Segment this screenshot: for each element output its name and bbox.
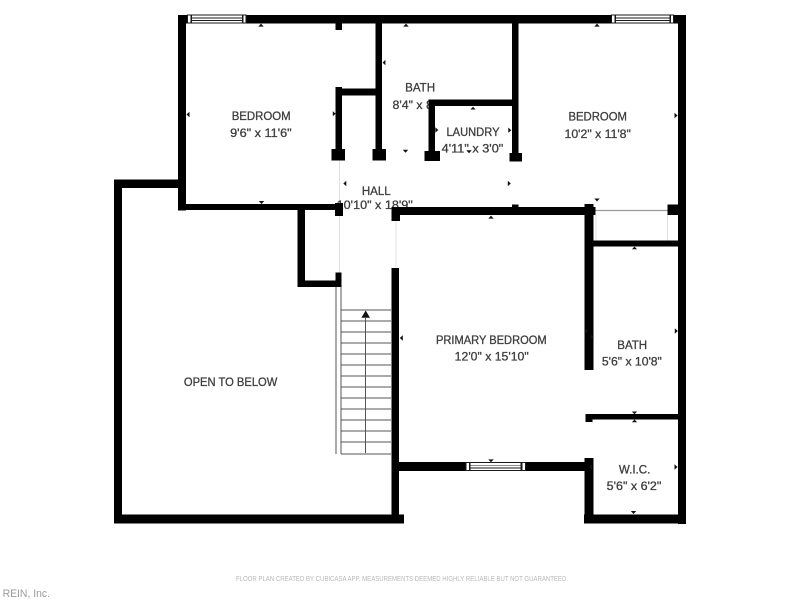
- svg-text:W.I.C.: W.I.C.: [619, 463, 650, 477]
- svg-text:10'2" x 11'8": 10'2" x 11'8": [565, 127, 631, 141]
- svg-text:REIN, Inc.: REIN, Inc.: [3, 588, 50, 600]
- svg-text:FLOOR PLAN CREATED BY CUBICASA: FLOOR PLAN CREATED BY CUBICASA APP. MEAS…: [236, 576, 568, 583]
- svg-text:LAUNDRY: LAUNDRY: [446, 125, 499, 139]
- svg-text:12'0" x 15'10": 12'0" x 15'10": [455, 350, 529, 364]
- svg-text:BATH: BATH: [405, 81, 435, 95]
- svg-text:HALL: HALL: [362, 184, 391, 198]
- svg-text:5'6" x 6'2": 5'6" x 6'2": [607, 479, 662, 493]
- svg-text:BATH: BATH: [617, 338, 647, 352]
- svg-text:9'6" x 11'6": 9'6" x 11'6": [230, 126, 292, 140]
- svg-text:OPEN TO BELOW: OPEN TO BELOW: [184, 375, 278, 389]
- svg-text:5'6" x 10'8": 5'6" x 10'8": [602, 355, 662, 369]
- svg-text:BEDROOM: BEDROOM: [232, 109, 291, 123]
- svg-text:PRIMARY BEDROOM: PRIMARY BEDROOM: [436, 333, 547, 347]
- svg-text:BEDROOM: BEDROOM: [568, 110, 627, 124]
- svg-text:4'11" x 3'0": 4'11" x 3'0": [442, 142, 504, 156]
